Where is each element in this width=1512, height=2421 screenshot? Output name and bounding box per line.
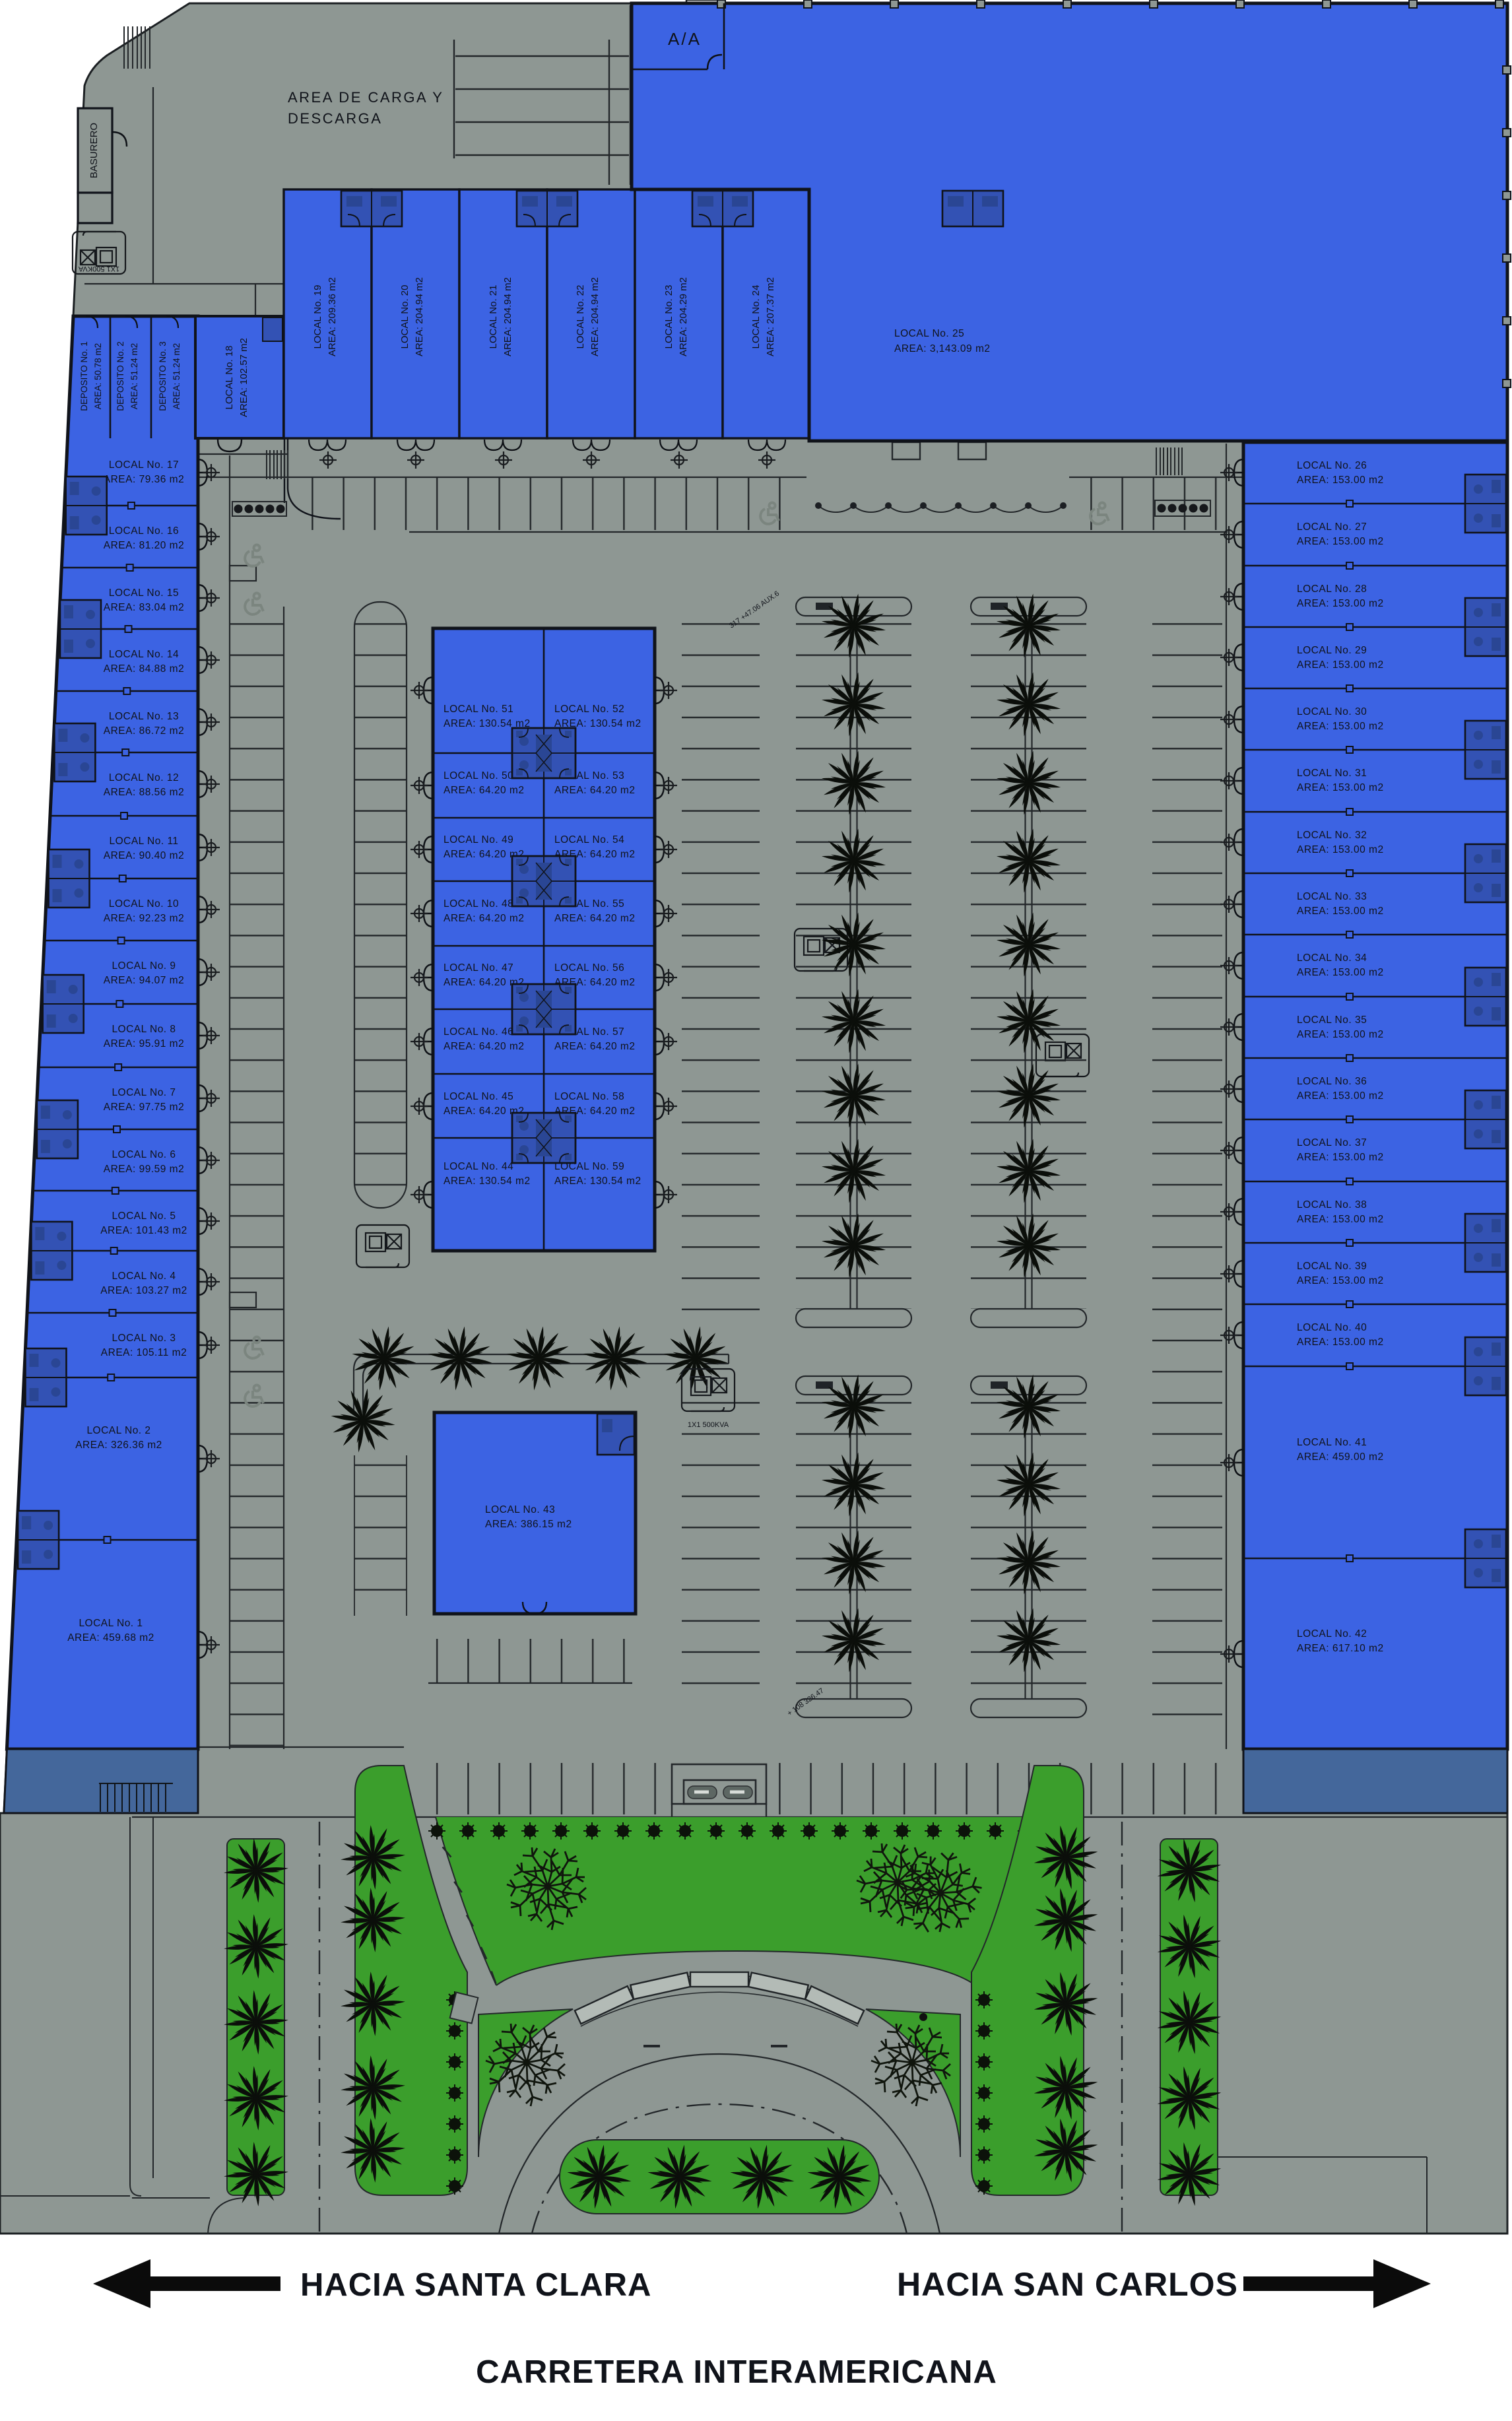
svg-text:AREA: 617.10 m2: AREA: 617.10 m2 [1297,1643,1384,1654]
svg-text:HACIA SANTA CLARA: HACIA SANTA CLARA [300,2267,651,2303]
svg-text:LOCAL No. 7: LOCAL No. 7 [112,1087,176,1098]
svg-text:LOCAL No. 30: LOCAL No. 30 [1297,706,1367,717]
svg-text:LOCAL No. 17: LOCAL No. 17 [109,459,179,471]
svg-text:AREA: 83.04 m2: AREA: 83.04 m2 [104,602,184,613]
svg-text:AREA: 153.00 m2: AREA: 153.00 m2 [1297,906,1384,917]
svg-text:LOCAL No. 33: LOCAL No. 33 [1297,891,1367,902]
svg-text:A/A: A/A [668,29,702,49]
svg-text:AREA: 459.00 m2: AREA: 459.00 m2 [1297,1451,1384,1463]
svg-text:AREA: 102.57 m2: AREA: 102.57 m2 [238,338,249,417]
svg-text:AREA: 153.00 m2: AREA: 153.00 m2 [1297,844,1384,855]
svg-text:LOCAL No. 46: LOCAL No. 46 [444,1026,513,1038]
svg-text:AREA: 153.00 m2: AREA: 153.00 m2 [1297,598,1384,609]
svg-text:LOCAL No. 25: LOCAL No. 25 [894,328,964,339]
svg-text:LOCAL No. 31: LOCAL No. 31 [1297,768,1367,779]
svg-text:AREA: 101.43 m2: AREA: 101.43 m2 [100,1225,187,1236]
svg-text:AREA: 51.24 m2: AREA: 51.24 m2 [172,343,181,410]
svg-text:AREA: 79.36 m2: AREA: 79.36 m2 [104,474,184,485]
svg-text:DEPOSITO No. 1: DEPOSITO No. 1 [79,341,89,411]
svg-text:AREA: 103.27 m2: AREA: 103.27 m2 [100,1285,187,1296]
svg-text:LOCAL No. 44: LOCAL No. 44 [444,1161,513,1172]
svg-text:AREA: 99.59 m2: AREA: 99.59 m2 [104,1164,184,1175]
svg-text:LOCAL No. 13: LOCAL No. 13 [109,711,179,722]
svg-text:LOCAL No. 39: LOCAL No. 39 [1297,1261,1367,1272]
svg-text:AREA: 51.24 m2: AREA: 51.24 m2 [129,343,139,410]
svg-text:LOCAL No. 14: LOCAL No. 14 [109,649,179,660]
svg-text:LOCAL No. 52: LOCAL No. 52 [554,704,624,715]
svg-text:LOCAL No. 50: LOCAL No. 50 [444,770,513,781]
svg-text:LOCAL No. 26: LOCAL No. 26 [1297,460,1367,471]
svg-text:AREA: 153.00 m2: AREA: 153.00 m2 [1297,1029,1384,1040]
svg-text:AREA: 153.00 m2: AREA: 153.00 m2 [1297,1214,1384,1225]
svg-text:CARRETERA INTERAMERICANA: CARRETERA INTERAMERICANA [476,2354,997,2390]
svg-text:LOCAL No. 34: LOCAL No. 34 [1297,952,1367,964]
svg-text:DEPOSITO No. 2: DEPOSITO No. 2 [115,341,125,411]
svg-text:AREA: 204.94 m2: AREA: 204.94 m2 [589,277,601,356]
svg-text:AREA: 153.00 m2: AREA: 153.00 m2 [1297,659,1384,671]
svg-text:AREA: 105.11 m2: AREA: 105.11 m2 [101,1347,187,1358]
svg-text:LOCAL No. 6: LOCAL No. 6 [112,1149,176,1160]
svg-text:AREA: 88.56 m2: AREA: 88.56 m2 [104,787,184,798]
svg-text:LOCAL No. 47: LOCAL No. 47 [444,962,513,974]
svg-text:1X1 500KVA: 1X1 500KVA [78,265,119,273]
svg-text:DESCARGA: DESCARGA [288,110,382,127]
svg-text:LOCAL No. 58: LOCAL No. 58 [554,1091,624,1102]
svg-text:LOCAL No. 8: LOCAL No. 8 [112,1024,176,1035]
svg-text:AREA: 97.75 m2: AREA: 97.75 m2 [104,1102,184,1113]
svg-text:LOCAL No. 28: LOCAL No. 28 [1297,583,1367,595]
svg-text:AREA: 204.94 m2: AREA: 204.94 m2 [414,277,425,356]
svg-text:AREA: 94.07 m2: AREA: 94.07 m2 [104,975,184,986]
svg-text:LOCAL No. 51: LOCAL No. 51 [444,704,513,715]
svg-text:LOCAL No. 36: LOCAL No. 36 [1297,1076,1367,1087]
svg-text:LOCAL No. 35: LOCAL No. 35 [1297,1014,1367,1026]
svg-text:LOCAL No. 29: LOCAL No. 29 [1297,645,1367,656]
svg-text:AREA: 95.91 m2: AREA: 95.91 m2 [104,1038,184,1049]
svg-text:AREA: 84.88 m2: AREA: 84.88 m2 [104,663,184,675]
svg-text:LOCAL No. 12: LOCAL No. 12 [109,772,179,783]
svg-text:AREA: 153.00 m2: AREA: 153.00 m2 [1297,1275,1384,1286]
svg-text:AREA: 64.20 m2: AREA: 64.20 m2 [444,913,524,924]
svg-text:AREA: 64.20 m2: AREA: 64.20 m2 [444,1041,524,1052]
svg-text:AREA: 209.36 m2: AREA: 209.36 m2 [327,277,338,356]
svg-text:DEPOSITO No. 3: DEPOSITO No. 3 [158,341,168,411]
svg-text:AREA DE CARGA Y: AREA DE CARGA Y [288,89,444,106]
svg-text:LOCAL No. 32: LOCAL No. 32 [1297,830,1367,841]
svg-text:AREA: 459.68 m2: AREA: 459.68 m2 [67,1632,154,1643]
svg-text:LOCAL No. 1: LOCAL No. 1 [79,1618,143,1629]
svg-text:LOCAL No. 54: LOCAL No. 54 [554,834,624,846]
svg-text:AREA: 153.00 m2: AREA: 153.00 m2 [1297,782,1384,793]
svg-text:LOCAL No. 5: LOCAL No. 5 [112,1210,176,1222]
svg-text:AREA: 386.15 m2: AREA: 386.15 m2 [485,1519,572,1530]
svg-text:LOCAL No. 16: LOCAL No. 16 [109,525,179,537]
svg-text:AREA: 92.23 m2: AREA: 92.23 m2 [104,913,184,924]
svg-text:AREA: 90.40 m2: AREA: 90.40 m2 [104,850,184,861]
svg-text:LOCAL No. 10: LOCAL No. 10 [109,898,179,910]
svg-text:LOCAL No. 18: LOCAL No. 18 [224,346,235,410]
svg-text:LOCAL No. 48: LOCAL No. 48 [444,898,513,910]
svg-text:LOCAL No. 19: LOCAL No. 19 [312,285,323,349]
svg-text:AREA: 207.37 m2: AREA: 207.37 m2 [765,277,776,356]
svg-text:AREA: 153.00 m2: AREA: 153.00 m2 [1297,967,1384,978]
svg-text:AREA: 86.72 m2: AREA: 86.72 m2 [104,725,184,737]
svg-text:LOCAL No. 45: LOCAL No. 45 [444,1091,513,1102]
svg-text:AREA: 326.36 m2: AREA: 326.36 m2 [75,1440,162,1451]
svg-text:LOCAL No. 42: LOCAL No. 42 [1297,1628,1367,1640]
svg-text:AREA: 204.29 m2: AREA: 204.29 m2 [678,277,689,356]
svg-text:AREA: 153.00 m2: AREA: 153.00 m2 [1297,1337,1384,1348]
svg-text:AREA: 204.94 m2: AREA: 204.94 m2 [502,277,513,356]
svg-text:LOCAL No. 21: LOCAL No. 21 [488,285,499,349]
svg-text:AREA: 64.20 m2: AREA: 64.20 m2 [444,785,524,796]
svg-text:LOCAL No. 3: LOCAL No. 3 [112,1333,176,1344]
svg-text:LOCAL No. 40: LOCAL No. 40 [1297,1322,1367,1333]
svg-text:LOCAL No. 27: LOCAL No. 27 [1297,521,1367,533]
svg-text:LOCAL No. 4: LOCAL No. 4 [112,1271,176,1282]
svg-text:HACIA SAN CARLOS: HACIA SAN CARLOS [897,2266,1238,2303]
svg-text:LOCAL No. 38: LOCAL No. 38 [1297,1199,1367,1210]
svg-text:LOCAL No. 22: LOCAL No. 22 [575,285,586,349]
svg-text:LOCAL No. 37: LOCAL No. 37 [1297,1137,1367,1148]
svg-text:LOCAL No. 49: LOCAL No. 49 [444,834,513,846]
svg-text:AREA: 153.00 m2: AREA: 153.00 m2 [1297,536,1384,547]
svg-text:LOCAL No. 20: LOCAL No. 20 [399,285,411,349]
svg-text:LOCAL No. 9: LOCAL No. 9 [112,960,176,972]
svg-text:AREA: 64.20 m2: AREA: 64.20 m2 [554,1041,635,1052]
svg-text:AREA: 50.78 m2: AREA: 50.78 m2 [93,343,103,410]
svg-text:AREA: 130.54 m2: AREA: 130.54 m2 [444,1176,531,1187]
svg-text:AREA: 153.00 m2: AREA: 153.00 m2 [1297,721,1384,732]
svg-text:AREA: 64.20 m2: AREA: 64.20 m2 [554,785,635,796]
svg-text:LOCAL No. 11: LOCAL No. 11 [109,836,178,847]
svg-text:LOCAL No. 43: LOCAL No. 43 [485,1504,555,1515]
svg-text:LOCAL No. 23: LOCAL No. 23 [663,285,674,349]
svg-text:LOCAL No. 15: LOCAL No. 15 [109,587,179,599]
svg-text:BASURERO: BASURERO [88,123,100,178]
svg-text:AREA: 81.20 m2: AREA: 81.20 m2 [104,540,184,551]
svg-text:LOCAL No. 41: LOCAL No. 41 [1297,1437,1367,1448]
svg-text:AREA: 153.00 m2: AREA: 153.00 m2 [1297,1090,1384,1102]
svg-text:LOCAL No. 2: LOCAL No. 2 [86,1425,150,1436]
svg-text:LOCAL No. 56: LOCAL No. 56 [554,962,624,974]
svg-text:AREA: 64.20 m2: AREA: 64.20 m2 [554,913,635,924]
svg-text:AREA: 130.54 m2: AREA: 130.54 m2 [554,1176,641,1187]
svg-text:AREA: 153.00 m2: AREA: 153.00 m2 [1297,1152,1384,1163]
svg-text:AREA: 153.00 m2: AREA: 153.00 m2 [1297,475,1384,486]
svg-text:1X1 500KVA: 1X1 500KVA [688,1421,729,1429]
svg-text:LOCAL No. 24: LOCAL No. 24 [750,285,762,349]
svg-text:AREA: 3,143.09 m2: AREA: 3,143.09 m2 [894,343,991,354]
